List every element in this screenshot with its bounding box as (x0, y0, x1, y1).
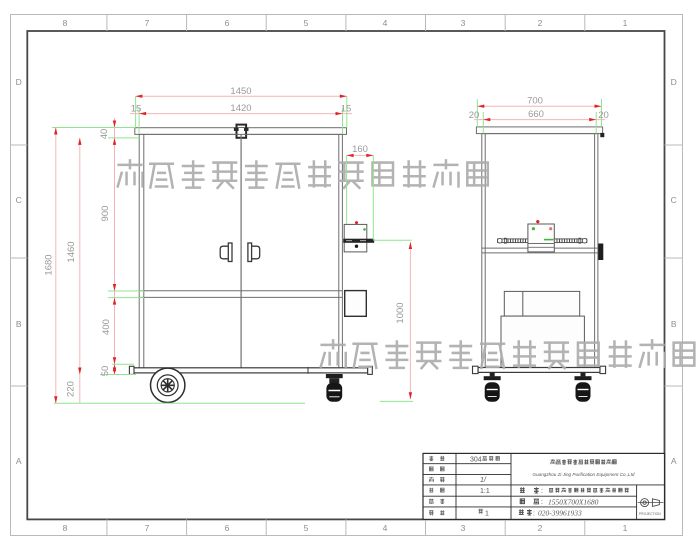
svg-text:B: B (16, 319, 22, 329)
svg-text:1550X700X1680: 1550X700X1680 (548, 498, 599, 507)
svg-text:PROJECTION: PROJECTION (639, 512, 661, 516)
svg-text:20: 20 (469, 110, 480, 121)
svg-text:15: 15 (131, 104, 142, 115)
svg-text:5: 5 (304, 523, 309, 533)
svg-text:1:1: 1:1 (480, 488, 490, 495)
svg-text:Guangzhou Zi Jing Purification: Guangzhou Zi Jing Purification Equipment… (533, 472, 635, 477)
svg-text:1000: 1000 (395, 302, 406, 323)
svg-text:1460: 1460 (66, 241, 77, 262)
svg-text:3: 3 (461, 18, 466, 28)
svg-text:1: 1 (485, 511, 489, 518)
svg-text::: : (541, 488, 543, 495)
svg-text:160: 160 (352, 144, 368, 155)
svg-text:020-39961933: 020-39961933 (538, 509, 582, 518)
svg-text:A: A (16, 456, 22, 466)
svg-text:7: 7 (145, 523, 150, 533)
svg-text:8: 8 (63, 18, 68, 28)
svg-text:900: 900 (100, 206, 111, 222)
svg-text:D: D (671, 77, 677, 87)
svg-text:5: 5 (304, 18, 309, 28)
svg-text:1450: 1450 (230, 86, 251, 97)
svg-text:C: C (16, 195, 22, 205)
svg-text:8: 8 (63, 523, 68, 533)
svg-text:7: 7 (145, 18, 150, 28)
svg-text:4: 4 (383, 18, 388, 28)
svg-text:4: 4 (383, 523, 388, 533)
svg-text:1680: 1680 (44, 254, 55, 275)
svg-text:3: 3 (461, 523, 466, 533)
svg-text:15: 15 (341, 104, 352, 115)
svg-text:6: 6 (225, 523, 230, 533)
svg-text:40: 40 (99, 129, 110, 140)
svg-text:1: 1 (623, 18, 628, 28)
svg-text:6: 6 (225, 18, 230, 28)
svg-text:660: 660 (528, 109, 544, 120)
svg-text:2: 2 (538, 523, 543, 533)
svg-text:400: 400 (101, 319, 112, 335)
svg-text:50: 50 (100, 366, 111, 377)
svg-text::: : (533, 511, 535, 518)
svg-text:2: 2 (538, 18, 543, 28)
svg-text:1: 1 (623, 523, 628, 533)
svg-text:A: A (671, 456, 677, 466)
svg-text:220: 220 (66, 381, 77, 397)
svg-text:C: C (671, 195, 677, 205)
svg-text:20: 20 (598, 110, 609, 121)
svg-text:B: B (671, 319, 677, 329)
svg-text:1420: 1420 (230, 103, 251, 114)
svg-text::: : (541, 499, 543, 506)
svg-text:D: D (16, 77, 22, 87)
svg-text:304: 304 (470, 457, 482, 464)
svg-text:700: 700 (527, 96, 543, 107)
